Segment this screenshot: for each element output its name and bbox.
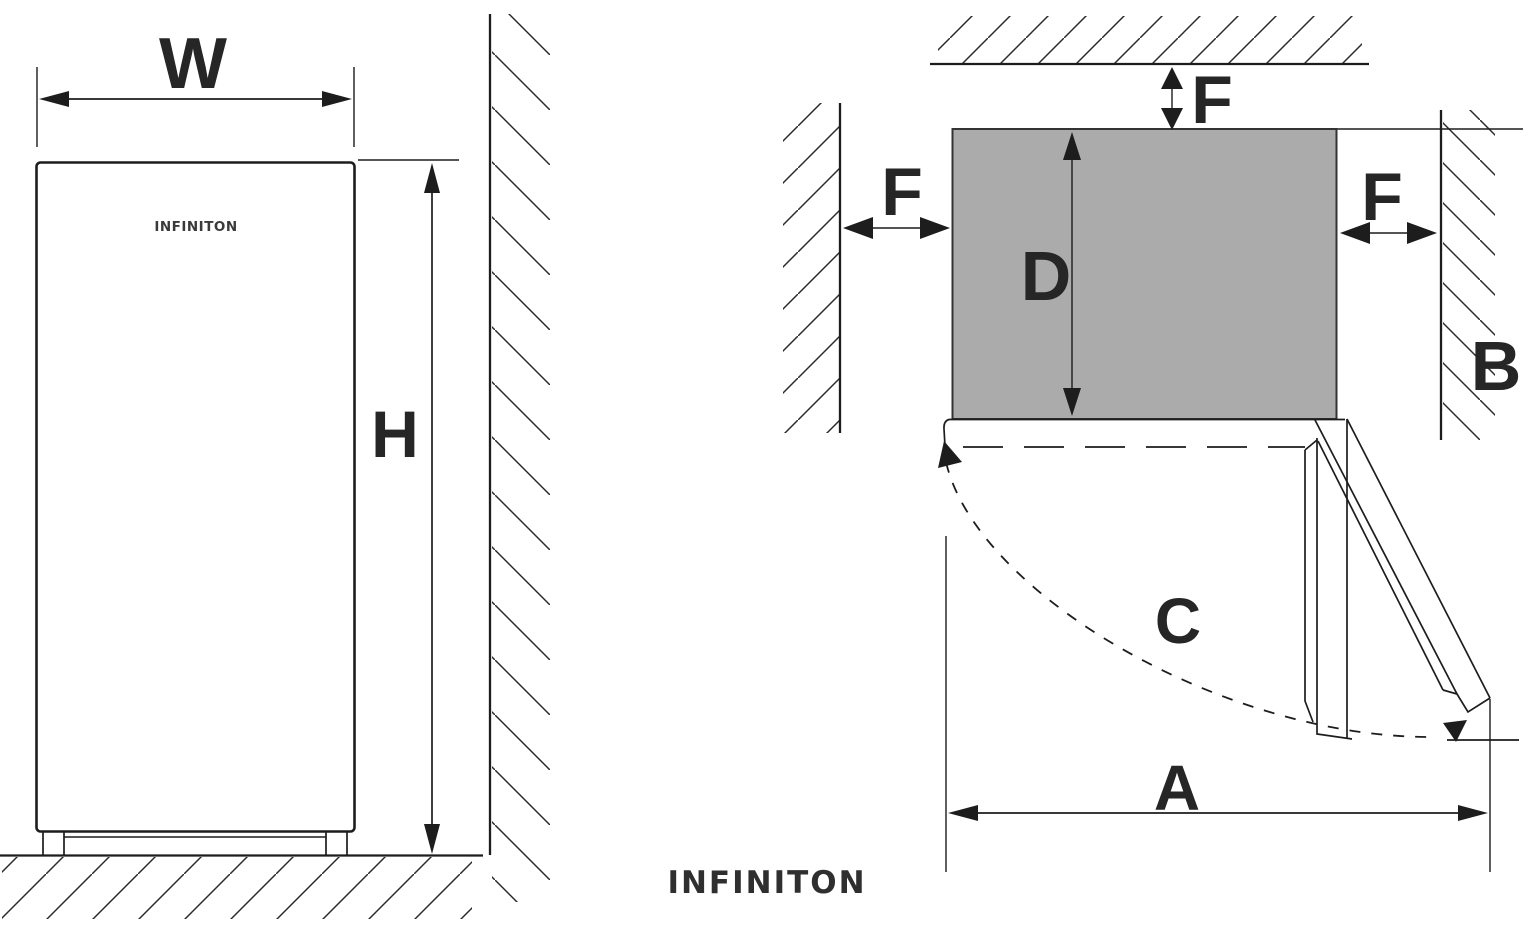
door-swing-arc <box>938 441 1519 742</box>
door-edge-line <box>1305 450 1313 722</box>
arrow-right-icon <box>322 91 352 107</box>
swing-label: C <box>1155 585 1201 657</box>
arrow-left-icon <box>843 217 873 239</box>
clearance-right-label: F <box>1361 159 1403 235</box>
top-view-diagram: F F F D B C <box>783 16 1523 872</box>
arc-arrow-start-icon <box>938 441 962 468</box>
left-wall-hatching <box>783 103 839 433</box>
arrow-left-icon <box>948 805 978 821</box>
door-panel-edge-3 <box>1318 441 1443 690</box>
wall-gap-label: B <box>1471 327 1522 405</box>
width-label: W <box>159 24 227 104</box>
total-width-label: A <box>1154 752 1200 824</box>
installation-clearance-diagram: INFINITON W H <box>0 0 1536 925</box>
arrow-left-icon <box>39 91 69 107</box>
depth-label: D <box>1021 237 1072 315</box>
door-edge-connector <box>1305 440 1317 450</box>
arrow-right-icon <box>1458 805 1488 821</box>
arrow-up-icon <box>424 163 440 193</box>
diagram-canvas: INFINITON W H <box>0 0 1536 925</box>
open-door <box>1305 419 1490 739</box>
cabinet-top-view <box>953 129 1337 419</box>
front-view-diagram: INFINITON W H <box>0 14 550 919</box>
floor-hatching <box>2 857 472 919</box>
clearance-right-dimension: F <box>1340 159 1437 244</box>
arrow-up-icon <box>1161 67 1183 89</box>
arrow-down-icon <box>424 824 440 854</box>
total-width-dimension: A <box>946 536 1490 872</box>
door-end-cap <box>1443 690 1490 712</box>
clearance-top-label: F <box>1191 62 1233 138</box>
appliance-front <box>37 163 355 832</box>
arc-arrow-end-icon <box>1443 720 1467 742</box>
cabinet-front-frame <box>944 420 1345 447</box>
appliance-foot-right <box>326 832 347 856</box>
appliance-brand-logo: INFINITON <box>154 219 237 235</box>
height-label: H <box>371 397 419 471</box>
height-dimension: H <box>358 160 459 854</box>
appliance-foot-left <box>43 832 64 856</box>
arrow-right-icon <box>920 217 950 239</box>
clearance-top-dimension: F <box>1161 62 1233 138</box>
brand-logo: INFINITON <box>667 865 866 901</box>
door-panel-edge-1 <box>1315 420 1457 694</box>
arrow-down-icon <box>1161 108 1183 130</box>
door-panel-edge-2 <box>1347 419 1490 698</box>
wall-hatching <box>492 14 550 902</box>
clearance-left-dimension: F <box>843 154 950 239</box>
clearance-left-label: F <box>881 154 923 230</box>
total-width-extension-lines <box>946 536 1490 872</box>
arrow-right-icon <box>1407 222 1437 244</box>
width-dimension: W <box>37 24 354 147</box>
rear-wall-hatching <box>938 16 1362 63</box>
